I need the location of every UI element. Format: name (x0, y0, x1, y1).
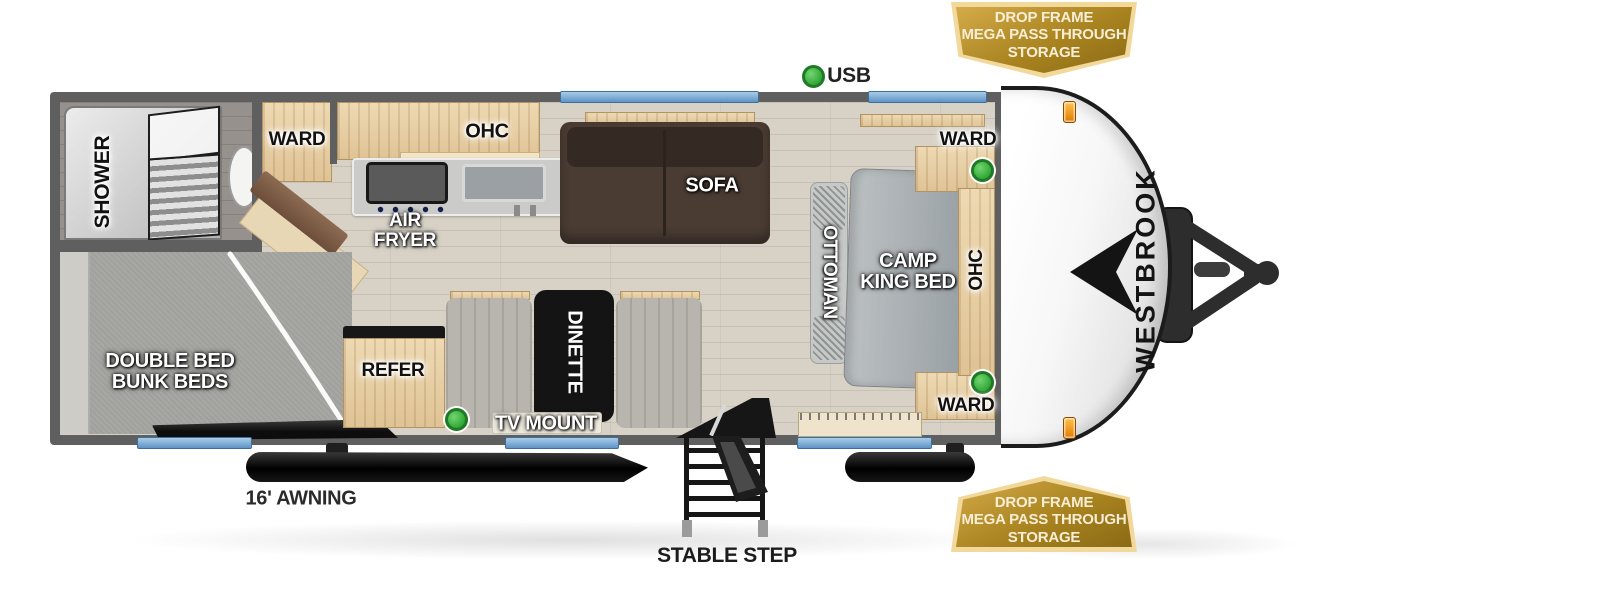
ottoman-label: OTTOMAN (818, 225, 840, 319)
kitchen-faucet-2 (530, 205, 536, 216)
ward-bath-label: WARD (269, 129, 326, 151)
badge-bottom-line2: MEGA PASS THROUGH (962, 511, 1127, 528)
camp-king-bed-label: CAMP KING BED (853, 251, 963, 293)
tv-mount-label: TV MOUNT (495, 413, 597, 436)
ground-shadow-left (120, 520, 1020, 560)
usb-dot-bed-top (971, 159, 994, 182)
badge-top-line2: MEGA PASS THROUGH (962, 26, 1127, 43)
clearance-light-bottom (1063, 417, 1076, 439)
kitchen-sink (462, 164, 546, 202)
refer-label: REFER (362, 360, 425, 382)
window-bottom-bunk (137, 437, 252, 449)
bedroom-step-ticks (800, 413, 920, 420)
stable-step (682, 436, 774, 538)
badge-bottom-line3: STORAGE (1008, 529, 1081, 546)
usb-dot-bed-bottom (971, 371, 994, 394)
brand-name: WESTBROOK (1131, 167, 1162, 373)
clearance-light-top (1063, 101, 1076, 123)
air-fryer-label: AIR FRYER (363, 211, 447, 251)
ward-front-bottom-label: WARD (938, 395, 995, 417)
usb-dot-tv (445, 408, 468, 431)
stabilizer-tube-right (845, 452, 975, 482)
refer-cabinet (343, 338, 445, 428)
window-bottom-dinette (505, 437, 619, 449)
window-top-bed (868, 91, 987, 103)
window-bottom-bed (797, 437, 932, 449)
usb-legend-dot (802, 65, 825, 88)
sofa-label: SOFA (685, 175, 738, 198)
air-fryer-unit (366, 162, 448, 204)
brand-arrow-logo (1070, 229, 1138, 315)
badge-bottom-line1: DROP FRAME (995, 494, 1094, 511)
storage-badge-bottom: DROP FRAME MEGA PASS THROUGH STORAGE (951, 476, 1137, 552)
kitchen-faucet (514, 205, 520, 216)
usb-legend-label: USB (827, 64, 870, 88)
stable-step-label: STABLE STEP (657, 544, 797, 568)
badge-top-line1: DROP FRAME (995, 9, 1094, 26)
shower-door-slats (148, 153, 220, 240)
bed-ohc-label: OHC (966, 249, 988, 290)
dinette-bench-right (616, 298, 702, 428)
bunk-curtain-curve (200, 250, 360, 436)
kitchen-divider-wall (330, 102, 337, 164)
dinette-label: DINETTE (563, 310, 586, 393)
kitchen-ohc-label: OHC (465, 121, 509, 144)
badge-top-line3: STORAGE (1008, 44, 1081, 61)
shower-label: SHOWER (91, 136, 115, 229)
sofa-seat-seam (663, 130, 666, 236)
storage-badge-top: DROP FRAME MEGA PASS THROUGH STORAGE (951, 2, 1137, 78)
window-top-main (560, 91, 759, 103)
ottoman-cushion-bottom (813, 316, 845, 360)
shelf-above-bed (860, 114, 985, 127)
bunk-frame-edge (60, 252, 90, 434)
awning-tube (246, 452, 648, 482)
floorplan-canvas: SHOWER WARD OHC AIR FRYER SOFA USB OTTOM… (0, 0, 1600, 593)
awning-label: 16' AWNING (245, 488, 356, 511)
ottoman-cushion-top (813, 186, 845, 230)
ward-front-top-label: WARD (940, 129, 997, 151)
bunk-beds-label: DOUBLE BED BUNK BEDS (98, 351, 243, 393)
